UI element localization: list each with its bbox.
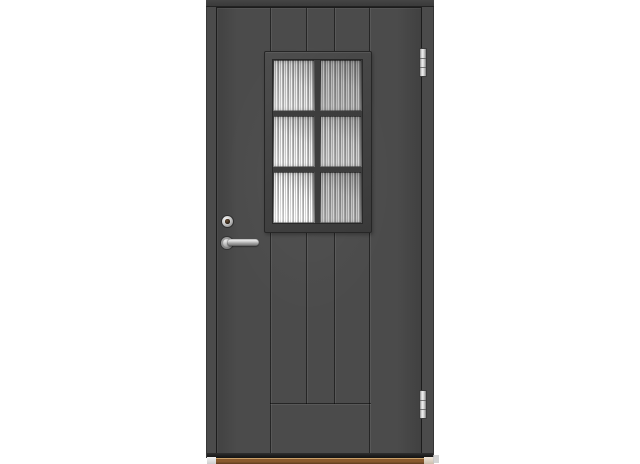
door-handle-lever	[227, 239, 259, 246]
door-window	[264, 51, 372, 233]
hinge-bottom	[419, 390, 427, 419]
window-grille	[272, 59, 363, 224]
exterior-door	[206, 0, 434, 464]
window-pane-top-right	[320, 60, 362, 111]
window-pane-bottom-left	[273, 172, 315, 223]
wooden-threshold	[216, 458, 424, 464]
threshold-endcap-left	[207, 457, 216, 464]
h-groove-bottom-rail	[270, 403, 371, 405]
product-photo	[0, 0, 640, 464]
window-pane-top-left	[273, 60, 315, 111]
floor-shadow	[433, 455, 439, 463]
hinge-top	[419, 48, 427, 77]
lock-cylinder	[221, 215, 234, 228]
window-pane-middle-left	[273, 116, 315, 167]
window-pane-bottom-right	[320, 172, 362, 223]
keyhole	[225, 219, 230, 224]
window-pane-middle-right	[320, 116, 362, 167]
door-leaf	[216, 7, 422, 454]
